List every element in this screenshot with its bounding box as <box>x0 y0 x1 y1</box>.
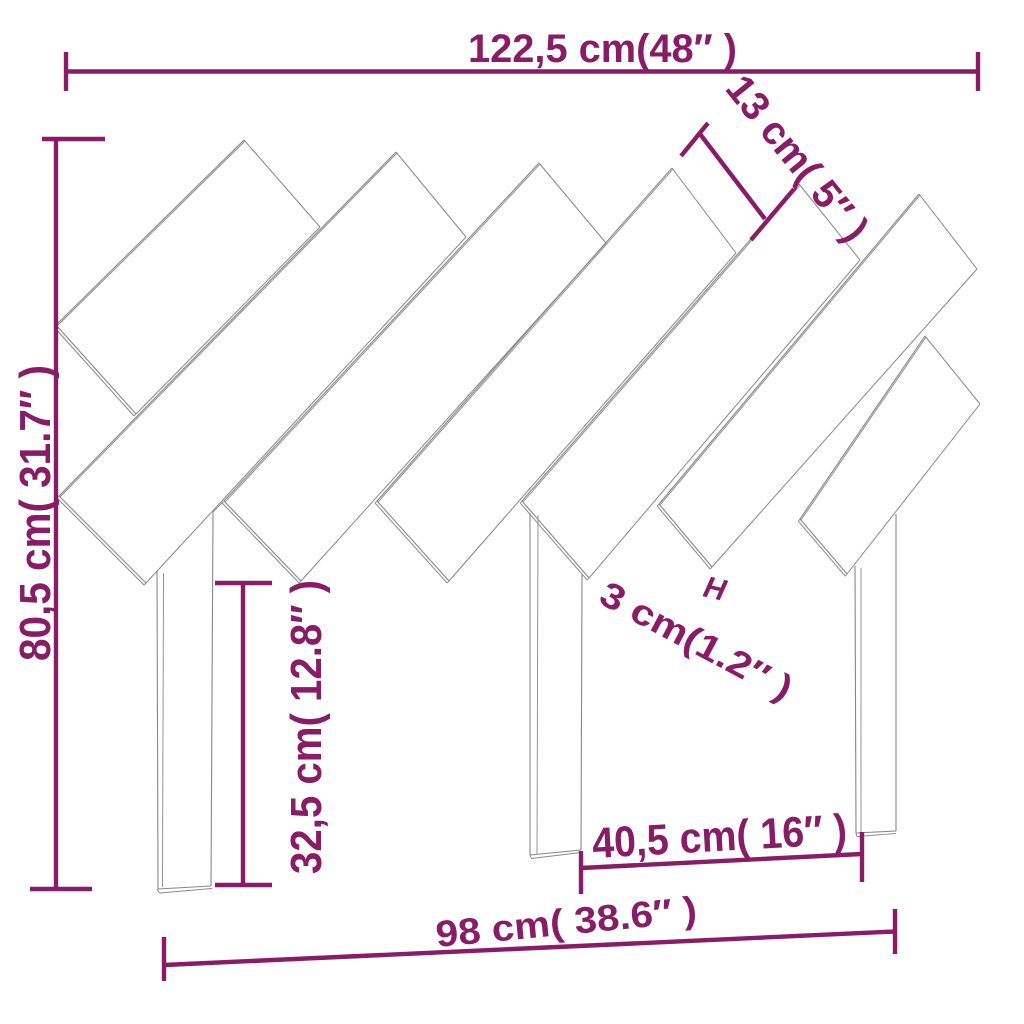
svg-text:32,5 cm( 12.8″ ): 32,5 cm( 12.8″ ) <box>282 580 331 874</box>
svg-text:80,5 cm( 31.7″ ): 80,5 cm( 31.7″ ) <box>11 365 60 661</box>
svg-text:122,5 cm(48″ ): 122,5 cm(48″ ) <box>468 27 737 71</box>
